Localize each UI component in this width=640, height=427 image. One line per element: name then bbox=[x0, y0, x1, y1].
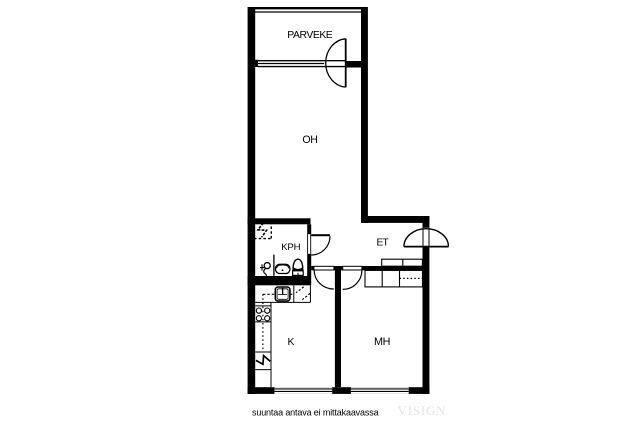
svg-text:VISIGN: VISIGN bbox=[398, 403, 447, 418]
svg-text:K: K bbox=[288, 337, 295, 348]
svg-text:OH: OH bbox=[302, 134, 317, 146]
svg-text:ET: ET bbox=[377, 237, 389, 248]
svg-text:PARVEKE: PARVEKE bbox=[287, 30, 332, 41]
svg-text:KPH: KPH bbox=[281, 242, 300, 253]
svg-text:suuntaa antava ei mittakaavass: suuntaa antava ei mittakaavassa bbox=[252, 407, 379, 417]
svg-text:MH: MH bbox=[374, 336, 390, 348]
